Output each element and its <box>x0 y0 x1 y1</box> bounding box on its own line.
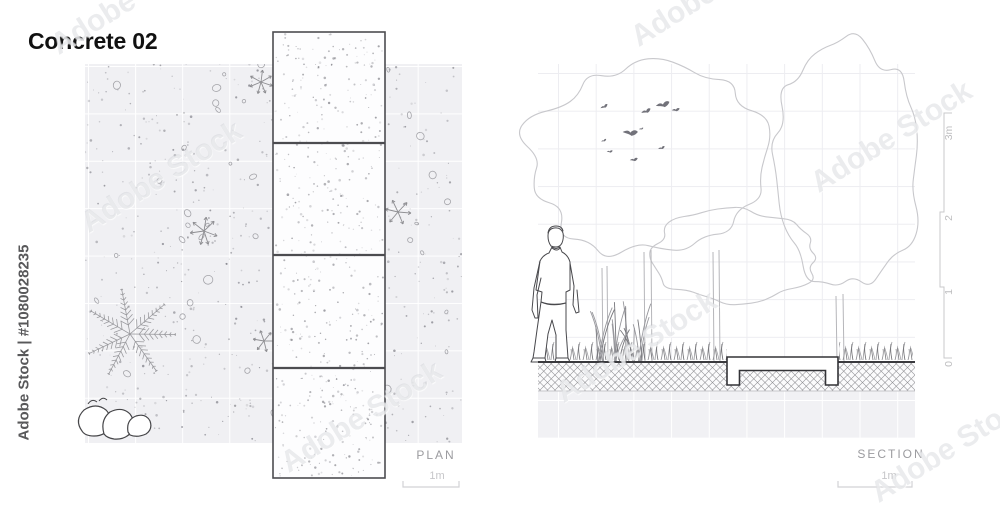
section-vertical-scale <box>940 113 952 358</box>
bird-silhouette <box>672 107 680 111</box>
boulder-outline <box>128 415 151 436</box>
tree-canopy-outline <box>520 59 770 257</box>
vscale-label-2: 2 <box>943 215 955 221</box>
plant-asterisk-symbol <box>190 217 217 244</box>
tree-canopy-outline <box>772 34 918 285</box>
vscale-label-3m: 3m <box>943 125 955 140</box>
plant-fern-symbol <box>88 289 176 375</box>
plan-boulder-symbols <box>78 398 150 439</box>
section-view-label: SECTION <box>838 447 944 461</box>
bird-silhouette <box>600 104 608 109</box>
plan-view-label: PLAN <box>400 448 472 462</box>
stock-image-canvas: 3m 2 1 0 Concrete 02 PLAN SECTION 1m 1m … <box>0 0 1000 526</box>
section-tree-outlines <box>520 34 918 362</box>
vscale-label-0: 0 <box>943 361 955 367</box>
plant-asterisk-symbol <box>250 70 273 94</box>
section-scale-text: 1m <box>866 470 912 482</box>
plan-scale-text: 1m <box>414 470 460 482</box>
plan-concrete-slab-strip <box>273 32 385 478</box>
bird-silhouette <box>622 127 638 138</box>
bird-silhouette <box>630 157 638 161</box>
bird-silhouette <box>658 146 665 149</box>
tree-trunk <box>836 296 837 362</box>
plant-asterisk-symbol <box>385 200 411 224</box>
vscale-label-1: 1 <box>943 289 955 295</box>
section-birds-flock <box>600 101 680 161</box>
bird-silhouette <box>607 149 613 153</box>
bird-silhouette <box>639 128 643 130</box>
bird-silhouette <box>641 108 651 113</box>
bird-silhouette <box>656 101 670 107</box>
page-title: Concrete 02 <box>28 28 157 55</box>
tree-canopy-outline <box>650 207 816 304</box>
bird-silhouette <box>601 139 607 142</box>
scale-indicators: 3m 2 1 0 <box>403 113 955 487</box>
